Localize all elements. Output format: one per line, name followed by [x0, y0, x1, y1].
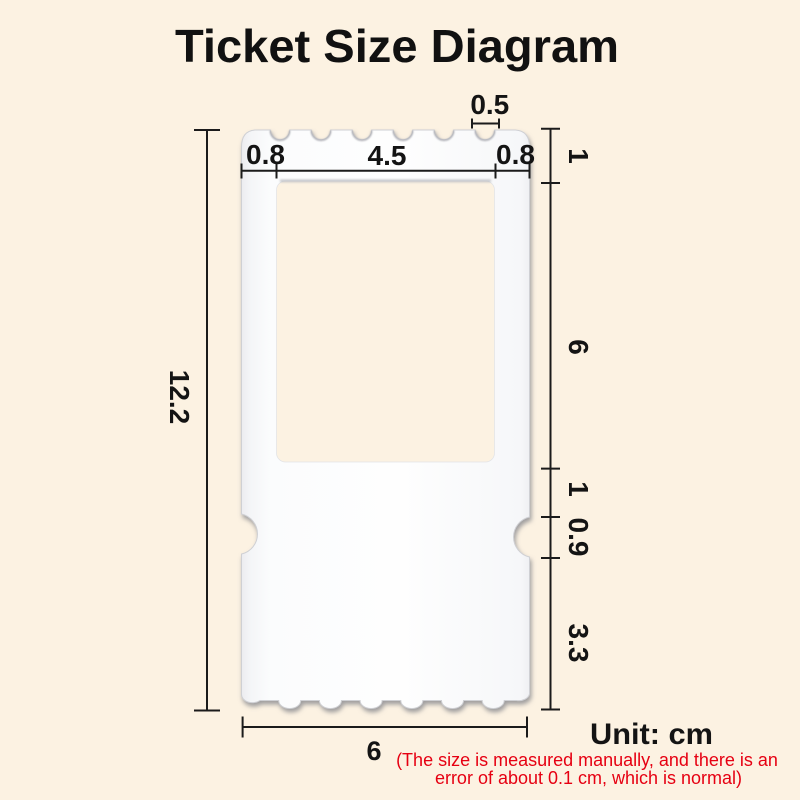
svg-text:0.8: 0.8: [246, 139, 285, 170]
svg-text:(The size is measured manually: (The size is measured manually, and ther…: [396, 750, 778, 770]
svg-text:0.5: 0.5: [470, 89, 509, 120]
svg-text:0.8: 0.8: [496, 139, 535, 170]
svg-text:12.2: 12.2: [164, 370, 195, 425]
svg-text:1: 1: [563, 481, 594, 497]
svg-text:6: 6: [563, 339, 594, 355]
svg-text:Ticket Size Diagram: Ticket Size Diagram: [175, 20, 619, 72]
svg-text:6: 6: [366, 736, 381, 766]
svg-text:error of about 0.1 cm, which i: error of about 0.1 cm, which is normal): [435, 768, 742, 788]
svg-text:3.3: 3.3: [563, 624, 594, 663]
svg-text:4.5: 4.5: [368, 140, 407, 171]
svg-text:1: 1: [563, 148, 594, 164]
svg-text:Unit: cm: Unit: cm: [590, 718, 713, 751]
svg-text:0.9: 0.9: [563, 518, 594, 557]
